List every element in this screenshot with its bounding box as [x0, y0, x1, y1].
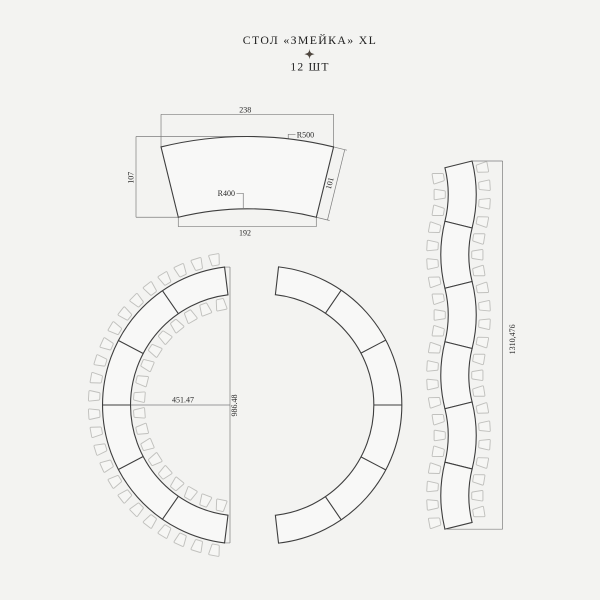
svg-text:СТОЛ «ЗМЕЙКА» XL: СТОЛ «ЗМЕЙКА» XL	[243, 33, 377, 47]
svg-text:986.48: 986.48	[230, 395, 239, 417]
svg-text:238: 238	[239, 105, 251, 114]
svg-text:451.47: 451.47	[172, 395, 194, 404]
svg-text:107: 107	[126, 172, 135, 184]
svg-text:192: 192	[239, 228, 251, 237]
svg-text:R400: R400	[218, 189, 235, 198]
svg-text:R500: R500	[297, 130, 314, 139]
svg-text:12 ШТ: 12 ШТ	[290, 60, 329, 73]
svg-text:1310,476: 1310,476	[508, 324, 517, 354]
